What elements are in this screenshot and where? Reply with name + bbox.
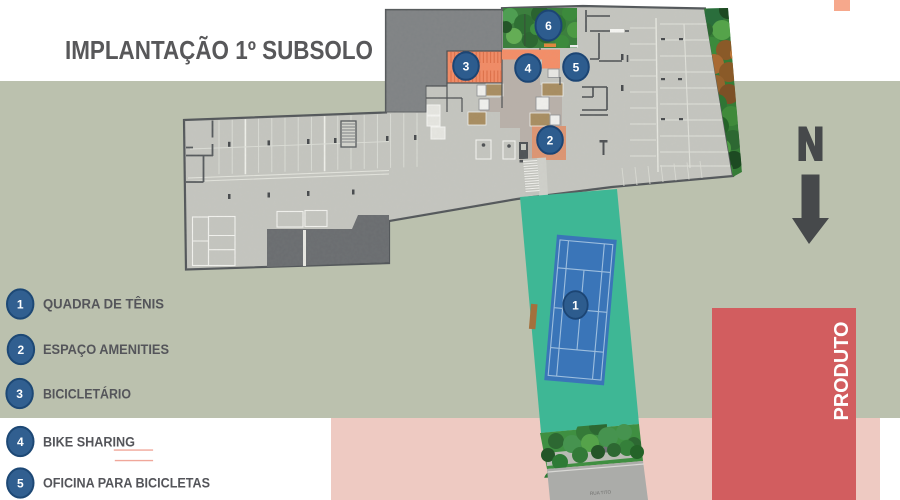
svg-text:4: 4 (17, 435, 24, 449)
svg-text:OFICINA PARA BICICLETAS: OFICINA PARA BICICLETAS (43, 476, 210, 492)
svg-text:4: 4 (525, 62, 532, 76)
svg-text:5: 5 (17, 477, 24, 491)
svg-text:1: 1 (572, 299, 579, 313)
svg-text:1: 1 (17, 298, 24, 312)
svg-text:2: 2 (547, 134, 554, 148)
svg-text:5: 5 (573, 61, 580, 75)
svg-text:6: 6 (545, 19, 552, 33)
svg-text:PRODUTO: PRODUTO (831, 322, 853, 421)
svg-text:ESPAÇO AMENITIES: ESPAÇO AMENITIES (43, 342, 169, 358)
svg-text:2: 2 (18, 343, 25, 357)
svg-text:BICICLETÁRIO: BICICLETÁRIO (43, 386, 131, 403)
svg-text:3: 3 (16, 387, 23, 401)
svg-text:3: 3 (463, 60, 470, 74)
svg-text:BIKE SHARING: BIKE SHARING (43, 435, 135, 451)
svg-text:QUADRA DE TÊNIS: QUADRA DE TÊNIS (43, 295, 164, 313)
svg-text:IMPLANTAÇÃO 1º SUBSOLO: IMPLANTAÇÃO 1º SUBSOLO (65, 35, 373, 65)
